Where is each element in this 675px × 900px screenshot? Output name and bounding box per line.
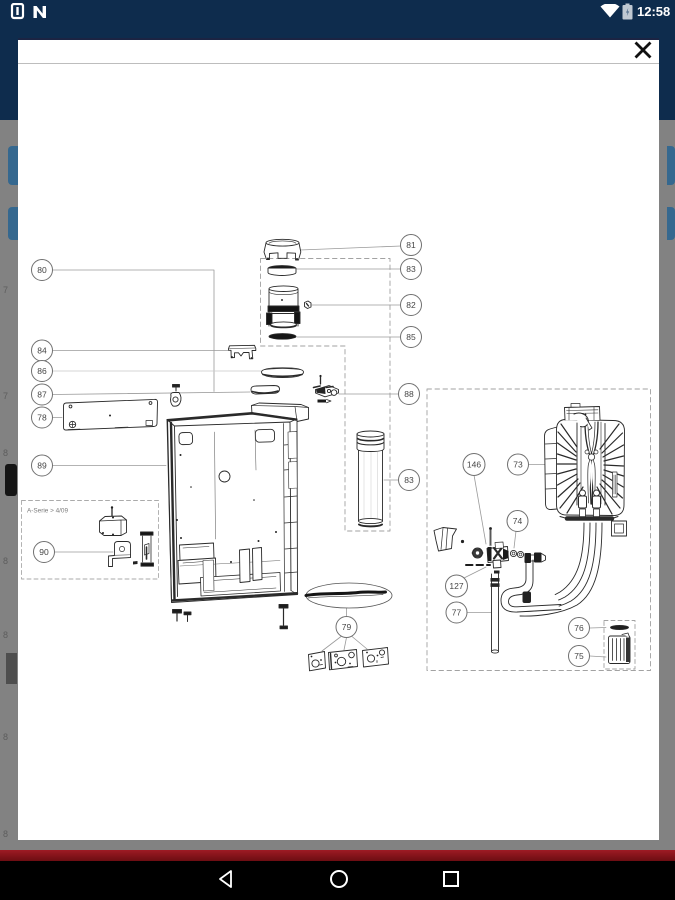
svg-text:90: 90 xyxy=(39,547,49,557)
svg-text:80: 80 xyxy=(37,265,47,275)
svg-text:87: 87 xyxy=(37,390,47,400)
svg-text:73: 73 xyxy=(513,460,523,470)
svg-text:146: 146 xyxy=(467,460,481,470)
svg-text:75: 75 xyxy=(574,651,584,661)
svg-text:83: 83 xyxy=(406,264,416,274)
svg-text:81: 81 xyxy=(406,240,416,250)
svg-text:77: 77 xyxy=(452,608,462,618)
svg-text:74: 74 xyxy=(513,516,523,526)
svg-text:89: 89 xyxy=(37,461,47,471)
svg-text:86: 86 xyxy=(37,366,47,376)
svg-text:79: 79 xyxy=(342,622,352,632)
svg-text:88: 88 xyxy=(404,389,414,399)
svg-text:82: 82 xyxy=(406,300,416,310)
svg-text:76: 76 xyxy=(574,623,584,633)
svg-text:A-Serie > 4/09: A-Serie > 4/09 xyxy=(27,508,68,515)
svg-text:78: 78 xyxy=(37,413,47,423)
svg-text:84: 84 xyxy=(37,346,47,356)
svg-text:83: 83 xyxy=(404,475,414,485)
svg-text:127: 127 xyxy=(449,581,463,591)
svg-text:85: 85 xyxy=(406,332,416,342)
